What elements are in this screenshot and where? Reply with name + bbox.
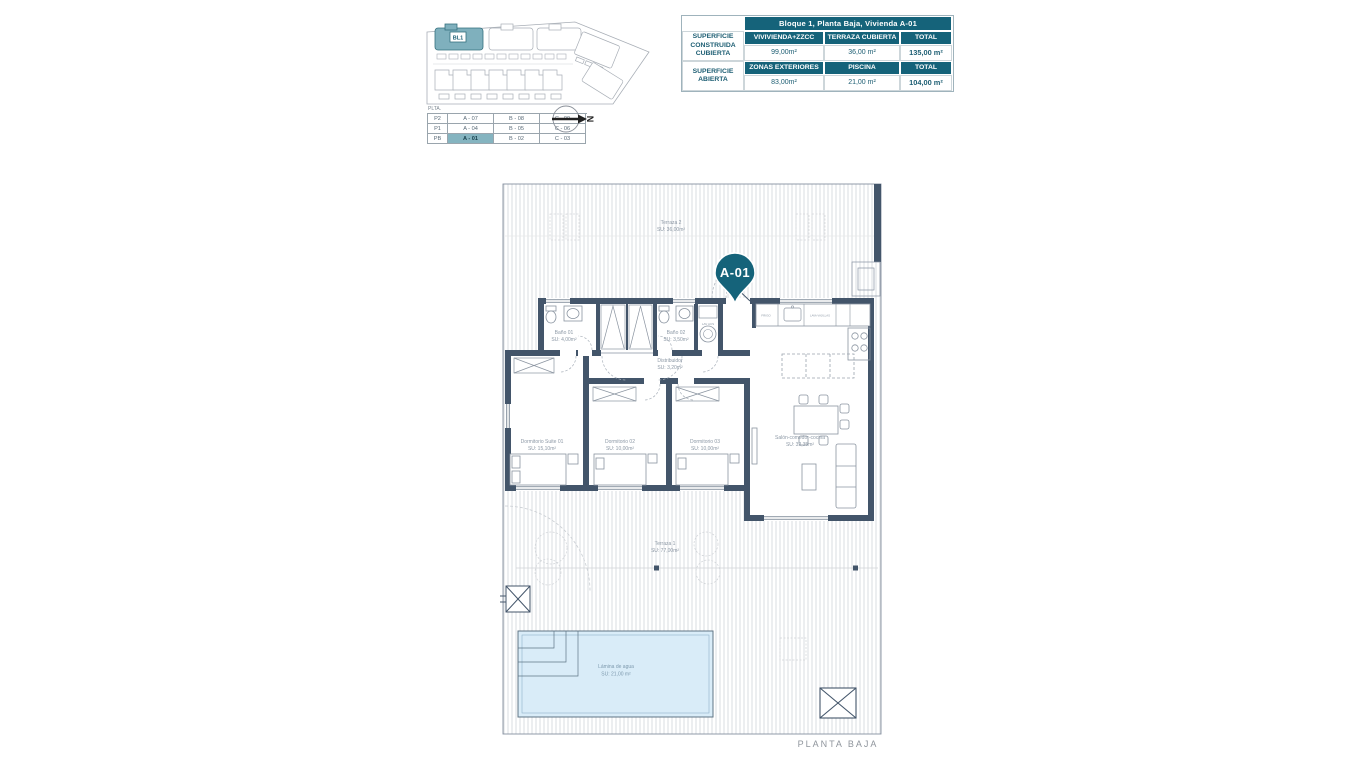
page: BL1: [0, 0, 1366, 768]
unit-a07: A - 07: [448, 114, 494, 124]
table-corner-blank: [682, 16, 744, 31]
suite-area: SU: 15,10m²: [528, 446, 556, 452]
col-total-2: TOTAL: [900, 61, 952, 75]
site-plan: BL1: [425, 18, 653, 106]
unit-b05: B - 05: [494, 124, 540, 134]
level-p2: P2: [428, 114, 448, 124]
terraza1-name: Terraza 1: [655, 541, 676, 547]
col-terraza-cubierta: TERRAZA CUBIERTA: [824, 31, 900, 45]
col-zonas-exteriores: ZONAS EXTERIORES: [744, 61, 824, 75]
salon-area: SU: 32,35m²: [786, 442, 814, 448]
bano2-name: Baño 02: [667, 330, 686, 336]
col-total-1: TOTAL: [900, 31, 952, 45]
val-total-2: 104,00 m²: [900, 75, 952, 91]
level-p1: P1: [428, 124, 448, 134]
floor-plan: LAV ACS FRIGO LAVA VAJILLAS: [498, 176, 888, 751]
dorm2-area: SU: 10,00m²: [606, 446, 634, 452]
site-buildings-bottom: [435, 70, 562, 99]
col-vivienda-zzcc: VIVIVIENDA+ZZCC: [744, 31, 824, 45]
block-label: BL1: [453, 36, 463, 42]
unit-b02: B - 02: [494, 134, 540, 144]
row-label-construida: SUPERFICIE CONSTRUIDA CUBIERTA: [682, 31, 744, 61]
col-piscina: PISCINA: [824, 61, 900, 75]
val-zonas-exteriores: 83,00m²: [744, 75, 824, 91]
row-label-abierta: SUPERFICIE ABIERTA: [682, 61, 744, 91]
surface-summary-table: Bloque 1, Planta Baja, Vivienda A-01 SUP…: [681, 15, 954, 92]
dorm3-area: SU: 10,00m²: [691, 446, 719, 452]
bano1-name: Baño 01: [555, 330, 574, 336]
distribuidor-name: Distribuidor: [657, 358, 683, 364]
terraza1-area: SU: 77,00m²: [651, 548, 679, 554]
val-terraza-cubierta: 36,00 m²: [824, 45, 900, 61]
terrace-wall-right: [874, 184, 881, 262]
level-pb: PB: [428, 134, 448, 144]
unit-b08: B - 08: [494, 114, 540, 124]
pool: Lámina de agua SU: 21,00 m²: [518, 631, 713, 717]
val-piscina: 21,00 m²: [824, 75, 900, 91]
site-buildings-right: [572, 31, 624, 99]
site-block-bl1: BL1: [435, 24, 483, 50]
north-arrow: N: [548, 102, 594, 136]
pool-label: Lámina de agua: [598, 664, 634, 670]
terraza2-area: SU: 36,00m²: [657, 227, 685, 233]
site-garages-top: [437, 54, 566, 59]
table-title: Bloque 1, Planta Baja, Vivienda A-01: [744, 16, 952, 31]
val-total-1: 135,00 m²: [900, 45, 952, 61]
plan-caption: PLANTA BAJA: [778, 739, 898, 749]
unit-a01-highlighted: A - 01: [448, 134, 494, 144]
north-label: N: [585, 116, 594, 123]
pin-label: A-01: [720, 265, 750, 280]
dorm3-name: Dormitorio 03: [690, 439, 720, 445]
val-vivienda: 99,00m²: [744, 45, 824, 61]
bano1-area: SU: 4,00m²: [551, 337, 577, 343]
suite-name: Dormitorio Suite 01: [521, 439, 564, 445]
bano2-area: SU: 3,50m²: [663, 337, 689, 343]
bathroom1-fixtures: [546, 306, 582, 323]
dishwasher-label: LAVA VAJILLAS: [810, 314, 830, 318]
terraza2-name: Terraza 2: [661, 220, 682, 226]
unit-a04: A - 04: [448, 124, 494, 134]
distribuidor-area: SU: 3,20m²: [657, 365, 683, 371]
bathroom2-fixtures: [659, 306, 693, 323]
dorm2-name: Dormitorio 02: [605, 439, 635, 445]
salon-name: Salón-comedor-cocina: [775, 435, 825, 441]
site-buildings-top: [489, 24, 581, 50]
pool-area: SU: 21,00 m²: [601, 672, 631, 678]
bbq: [820, 688, 856, 718]
fridge-label: FRIGO: [761, 314, 771, 318]
laundry-label: LAV ACS: [702, 322, 714, 326]
